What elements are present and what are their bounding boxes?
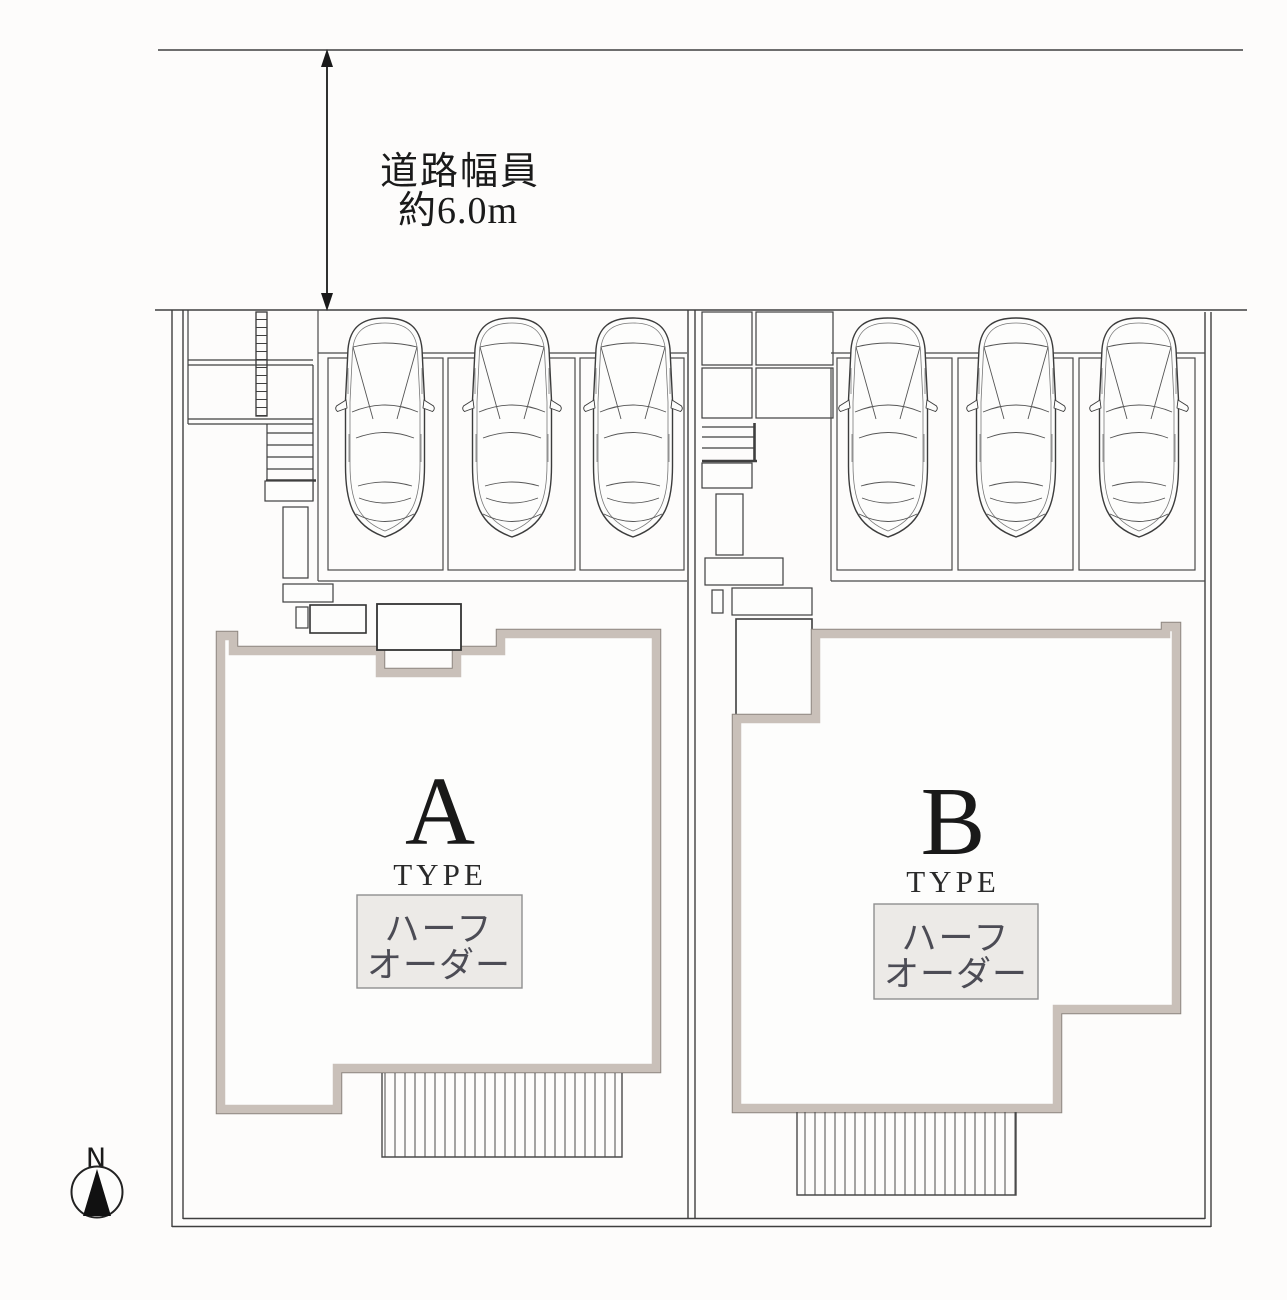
lot-a-order-line1: ハーフ (385, 910, 494, 949)
entrance-canopy (310, 605, 366, 633)
lot-a-order-line2: オーダー (367, 946, 511, 985)
lot-b-order-line1: ハーフ (902, 919, 1011, 958)
road-width-dimension: 道路幅員 約6.0m (321, 49, 540, 311)
road-width-label-line2: 約6.0m (398, 190, 518, 232)
deck-a (382, 1073, 622, 1157)
dimension-arrowhead-down-icon (321, 293, 333, 311)
approach-grid-cell (702, 312, 752, 365)
approach-step-slab (705, 558, 783, 585)
lot-a-letter: A (405, 758, 475, 865)
approach-grid-cell (702, 368, 752, 418)
approach-planter (283, 507, 308, 578)
dimension-arrowhead-up-icon (321, 49, 333, 67)
lot-b-letter: B (921, 768, 986, 875)
entrance-porch (377, 604, 461, 650)
lot-a-cars (336, 318, 683, 537)
approach-planter (716, 494, 743, 555)
car-icon (584, 318, 683, 537)
approach-step-slab (732, 588, 812, 615)
lot-b-order-line2: オーダー (884, 955, 1028, 994)
site-plan: 道路幅員 約6.0m (0, 0, 1287, 1300)
approach-landing (702, 463, 752, 488)
approach-grid-cell (756, 312, 833, 365)
lot-b: B TYPE ハーフ オーダー (702, 312, 1205, 1195)
road-width-label-line1: 道路幅員 (380, 151, 540, 193)
lot-a-approach (188, 310, 333, 628)
deck-b-hatch (797, 1112, 1016, 1195)
deck-b (797, 1112, 1016, 1195)
approach-post (296, 607, 308, 628)
car-icon (336, 318, 435, 537)
approach-landing (265, 481, 313, 501)
car-icon (839, 318, 938, 537)
lot-a: A TYPE ハーフ オーダー (188, 310, 687, 1157)
compass: N (72, 1143, 123, 1218)
approach-grid-cell (756, 368, 833, 418)
entrance-court (736, 619, 812, 717)
car-icon (463, 318, 562, 537)
approach-step-slab (283, 584, 333, 602)
lot-b-stairs (702, 423, 757, 461)
lot-a-stairs (266, 424, 316, 481)
lot-a-type-label: TYPE (393, 857, 487, 892)
car-icon (1090, 318, 1189, 537)
road: 道路幅員 約6.0m (155, 49, 1247, 311)
lot-b-type-label: TYPE (906, 864, 1000, 899)
deck-a-hatch (382, 1073, 622, 1157)
open-stair-strip (256, 312, 267, 416)
approach-post (712, 590, 723, 613)
car-icon (967, 318, 1066, 537)
lot-b-cars (839, 318, 1189, 537)
